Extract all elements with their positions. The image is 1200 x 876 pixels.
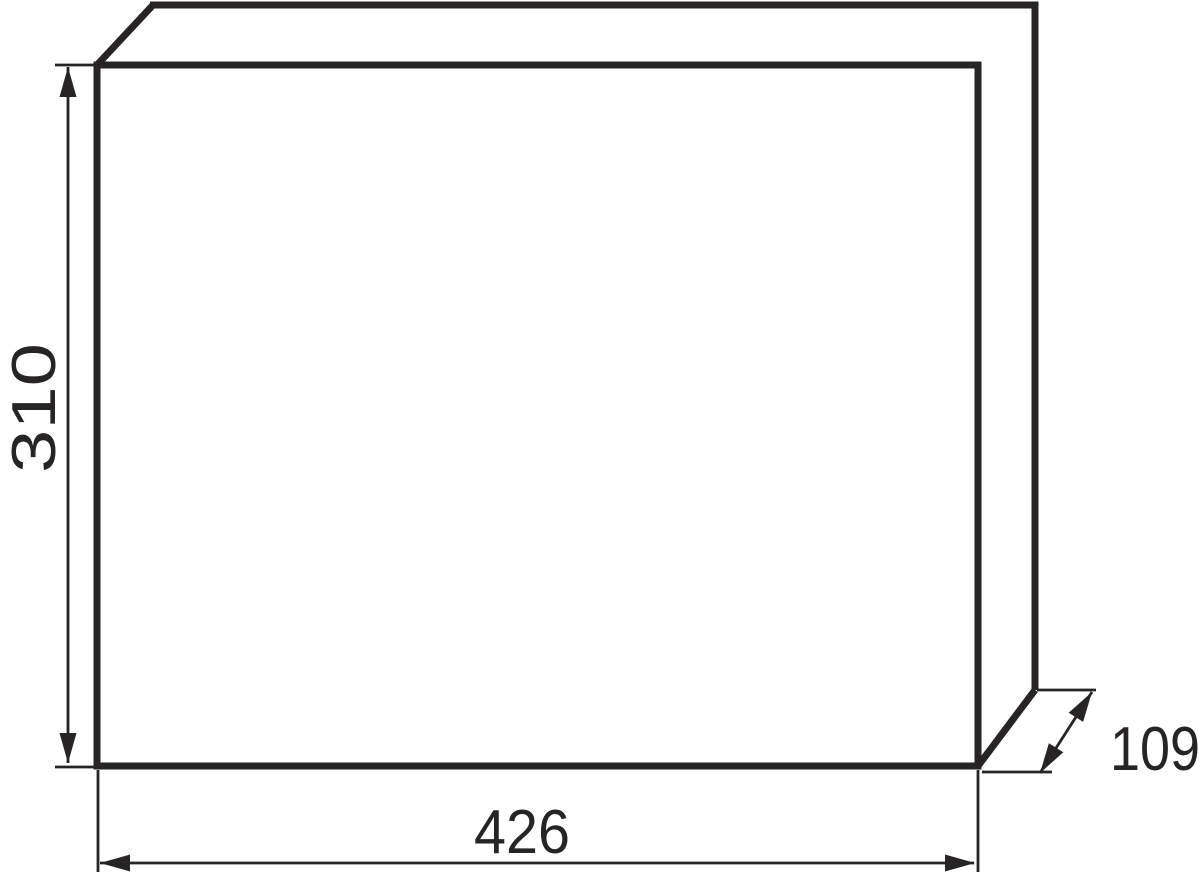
dimension-drawing-page: 310 426 109 [0,0,1200,876]
box-dimension-drawing: 310 426 109 [0,0,1200,876]
box-front-face [97,65,978,766]
width-arrowhead-left [100,855,130,872]
depth-arrowhead-upper [1069,692,1092,722]
height-dimension-label: 310 [0,343,69,473]
height-dimension: 310 [0,65,97,767]
height-arrowhead-up [60,67,77,97]
depth-arrowhead-lower [1040,743,1063,773]
depth-dimension-label: 109 [1110,715,1200,784]
width-dimension-label: 426 [474,798,570,867]
height-arrowhead-down [60,733,77,763]
box-outline [97,2,1039,766]
box-bottom-right-depth-edge [978,690,1035,766]
width-dimension: 426 [98,770,978,872]
width-arrowhead-right [945,855,975,872]
depth-dimension: 109 [982,690,1200,784]
box-top-left-depth-edge [97,5,153,65]
